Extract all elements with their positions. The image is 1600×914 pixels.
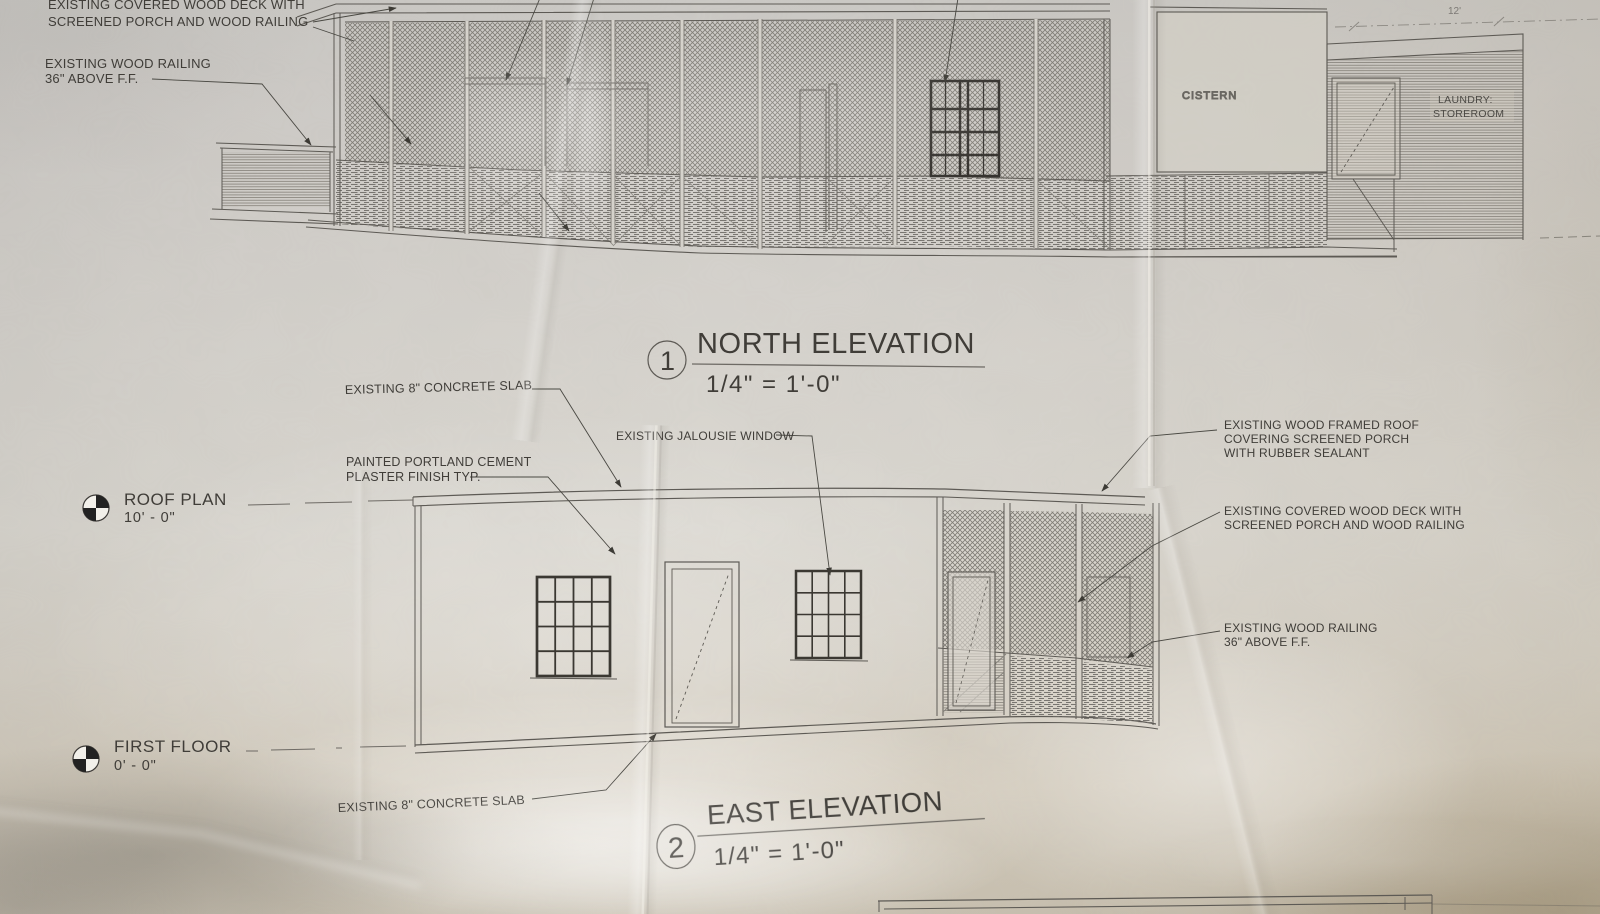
svg-text:EXISTING WOOD RAILING: EXISTING WOOD RAILING bbox=[1224, 621, 1378, 635]
svg-text:12': 12' bbox=[1448, 6, 1461, 17]
svg-text:STOREROOM: STOREROOM bbox=[1433, 108, 1504, 120]
svg-text:EXISTING WOOD RAILING: EXISTING WOOD RAILING bbox=[45, 56, 211, 71]
svg-text:NORTH ELEVATION: NORTH ELEVATION bbox=[697, 328, 975, 360]
svg-text:WITH RUBBER SEALANT: WITH RUBBER SEALANT bbox=[1224, 446, 1370, 460]
svg-text:EXISTING COVERED WOOD DECK WIT: EXISTING COVERED WOOD DECK WITH bbox=[1224, 504, 1462, 518]
svg-text:EXISTING WOOD FRAMED ROOF: EXISTING WOOD FRAMED ROOF bbox=[1224, 418, 1419, 432]
svg-text:10' - 0": 10' - 0" bbox=[124, 510, 175, 526]
svg-text:36" ABOVE F.F.: 36" ABOVE F.F. bbox=[1224, 635, 1310, 649]
svg-text:1: 1 bbox=[660, 346, 675, 376]
svg-text:36" ABOVE F.F.: 36" ABOVE F.F. bbox=[45, 71, 138, 86]
svg-text:SCREENED PORCH AND WOOD RAILIN: SCREENED PORCH AND WOOD RAILING bbox=[48, 14, 308, 29]
svg-text:ROOF PLAN: ROOF PLAN bbox=[124, 490, 227, 509]
svg-text:CISTERN: CISTERN bbox=[1182, 90, 1237, 102]
svg-text:EXISTING COVERED WOOD DECK WIT: EXISTING COVERED WOOD DECK WITH bbox=[48, 0, 305, 12]
svg-text:FIRST FLOOR: FIRST FLOOR bbox=[114, 737, 232, 756]
svg-text:SCREENED PORCH AND WOOD RAILIN: SCREENED PORCH AND WOOD RAILING bbox=[1224, 518, 1465, 532]
svg-text:PAINTED PORTLAND CEMENT: PAINTED PORTLAND CEMENT bbox=[346, 455, 532, 469]
svg-text:1/4" = 1'-0": 1/4" = 1'-0" bbox=[706, 371, 841, 398]
svg-text:0' - 0": 0' - 0" bbox=[114, 758, 157, 774]
svg-text:COVERING SCREENED PORCH: COVERING SCREENED PORCH bbox=[1224, 432, 1409, 446]
svg-text:LAUNDRY:: LAUNDRY: bbox=[1438, 94, 1493, 106]
